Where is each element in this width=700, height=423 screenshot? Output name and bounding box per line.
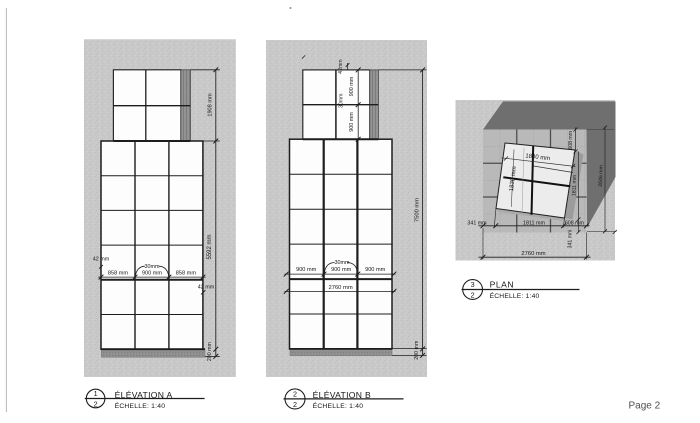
svg-text:900 mm: 900 mm (349, 112, 355, 132)
svg-text:858 mm: 858 mm (108, 271, 129, 277)
svg-text:1908 mm: 1908 mm (208, 93, 214, 117)
svg-text:341 mm: 341 mm (467, 221, 487, 227)
svg-text:2: 2 (293, 390, 297, 399)
svg-text:30mm: 30mm (145, 264, 160, 270)
svg-text:900 mm: 900 mm (296, 267, 317, 273)
svg-text:608 mm: 608 mm (565, 220, 585, 226)
svg-text:ÉLÉVATION A: ÉLÉVATION A (115, 390, 173, 400)
svg-text:ÉCHELLE: 1:40: ÉCHELLE: 1:40 (490, 291, 540, 300)
svg-text:3: 3 (471, 280, 475, 289)
svg-text:ÉCHELLE: 1:40: ÉCHELLE: 1:40 (115, 401, 166, 410)
svg-text:7500 mm: 7500 mm (415, 198, 421, 222)
svg-text:5592 mm: 5592 mm (207, 234, 213, 259)
svg-text:608 mm: 608 mm (568, 131, 574, 150)
svg-text:Page 2: Page 2 (629, 401, 661, 412)
svg-text:2760 mm: 2760 mm (521, 251, 545, 257)
svg-text:42 mm: 42 mm (93, 256, 110, 262)
svg-text:200 mm: 200 mm (207, 341, 213, 361)
svg-text:2760 mm: 2760 mm (329, 285, 353, 291)
svg-text:2: 2 (471, 290, 475, 299)
svg-text:PLAN: PLAN (490, 280, 514, 290)
svg-text:ÉCHELLE: 1:40: ÉCHELLE: 1:40 (313, 401, 364, 410)
svg-text:2: 2 (293, 400, 297, 409)
svg-text:1: 1 (94, 389, 98, 398)
svg-text:30mm: 30mm (339, 94, 345, 108)
svg-text:1811 mm: 1811 mm (523, 221, 546, 227)
svg-text:42mm: 42mm (338, 59, 344, 73)
svg-text:900 mm: 900 mm (365, 267, 386, 273)
svg-text:1811 mm: 1811 mm (571, 175, 578, 196)
svg-text:858 mm: 858 mm (176, 271, 197, 277)
svg-text:200 mm: 200 mm (414, 340, 420, 360)
svg-text:900 mm: 900 mm (331, 267, 352, 273)
svg-text:2046 mm: 2046 mm (598, 165, 605, 187)
svg-text:42 mm: 42 mm (198, 284, 215, 290)
svg-text:ÉLÉVATION B: ÉLÉVATION B (313, 390, 371, 400)
svg-text:341 mm: 341 mm (568, 230, 574, 249)
svg-text:900 mm: 900 mm (142, 271, 163, 277)
svg-text:30mm: 30mm (335, 260, 350, 266)
svg-text:2: 2 (94, 399, 98, 408)
svg-text:900 mm: 900 mm (349, 76, 355, 96)
